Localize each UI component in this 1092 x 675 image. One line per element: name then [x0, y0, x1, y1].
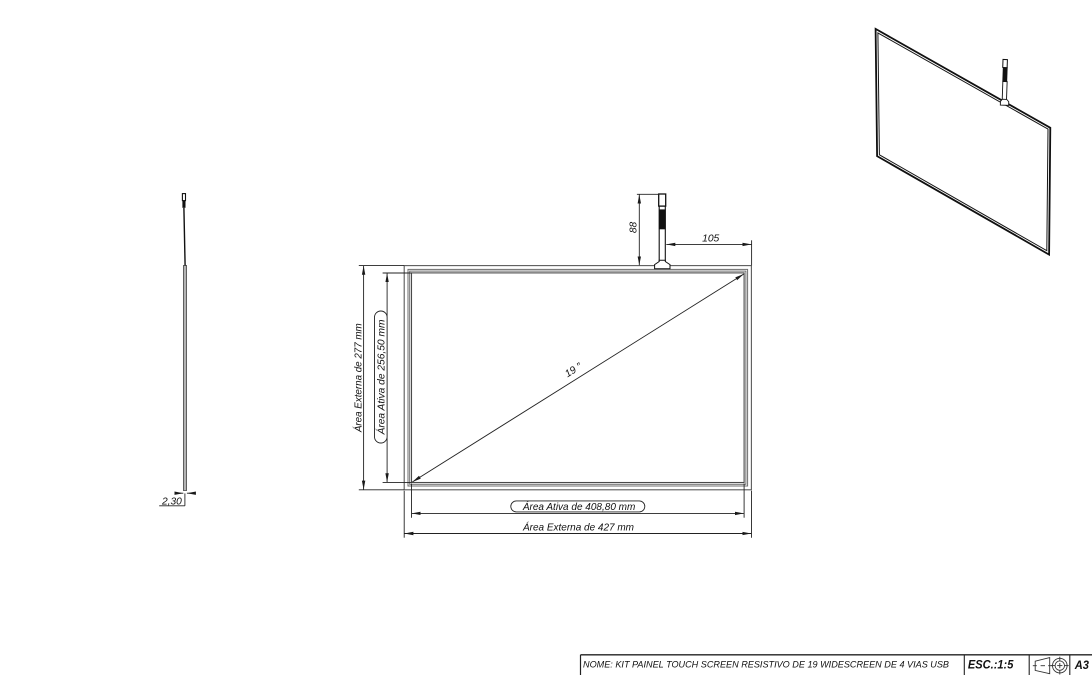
svg-text:NOME: KIT PAINEL TOUCH SCREEN: NOME: KIT PAINEL TOUCH SCREEN RESISTIVO …	[583, 659, 949, 669]
svg-text:88: 88	[628, 222, 639, 234]
svg-text:Área Ativa de 408,80 mm: Área Ativa de 408,80 mm	[522, 500, 636, 513]
svg-text:ESC.:1:5: ESC.:1:5	[968, 660, 1014, 672]
svg-text:105: 105	[702, 233, 720, 244]
svg-text:A3: A3	[1074, 658, 1089, 672]
svg-text:Área Externa de 277 mm: Área Externa de 277 mm	[353, 323, 364, 433]
svg-text:Área Ativa de 256,50 mm: Área Ativa de 256,50 mm	[374, 320, 387, 436]
svg-text:Área Externa de 427 mm: Área Externa de 427 mm	[522, 520, 634, 533]
svg-text:2,30: 2,30	[161, 496, 182, 507]
